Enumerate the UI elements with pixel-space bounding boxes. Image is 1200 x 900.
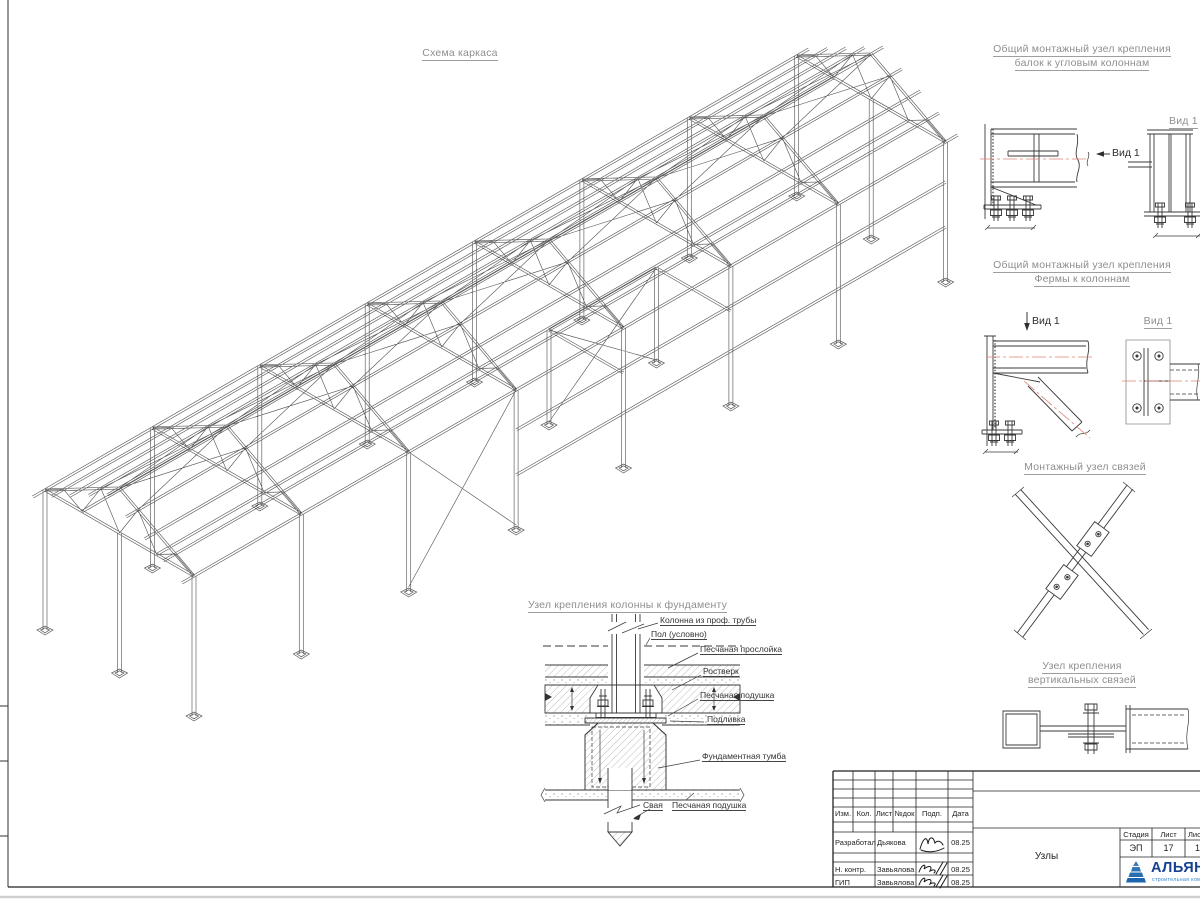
view2-side-label: Вид 1 [1130,315,1186,327]
tb-sheets-value: 1 [1185,843,1200,853]
tb-stage-label: Стадия [1120,830,1152,839]
tb-col-kol: Кол. [853,809,875,818]
tb-sheet-label: Лист [1152,830,1185,839]
tb-role-developer: Разработал [835,838,876,847]
detail1-title-line1: Общий монтажный узел крепления [963,43,1200,55]
tb-col-data: Дата [948,809,973,818]
tb-col-izm: Изм. [833,809,853,818]
tb-name-ncontrol: Завьялова [877,865,914,874]
detail1-title-line2: балок к угловым колоннам [963,57,1200,69]
tb-name-developer: Дьякова [877,838,906,847]
tb-col-ndoc: №док [893,809,916,818]
tb-name-gip: Завьялова [877,878,914,887]
view1-side-label: Вид 1 [1169,115,1200,127]
detail2-title-line1: Общий монтажный узел крепления [963,259,1200,271]
detail3-title: Монтажный узел связей [990,461,1180,473]
callout-floor: Пол (условно) [651,629,707,640]
tb-date-gip: 08.25 [948,878,973,887]
company-subtitle: строительная комп [1152,877,1200,883]
signature [919,838,947,888]
detail2-title-line2: Фермы к колоннам [963,273,1200,285]
tb-doc-name: Узлы [973,851,1120,862]
detail-beam-corner-column [980,124,1200,238]
callout-sand-cushion-2: Песчаная подушка [672,800,746,811]
tb-role-ncontrol: Н. контр. [835,865,866,874]
tb-date-developer: 08.25 [948,838,973,847]
detail-vertical-brace [1003,704,1189,754]
detail4-title-line1: Узел крепления [992,660,1172,672]
tb-sheets-label: Лис [1185,830,1200,839]
callout-grout: Подливка [707,714,745,725]
callout-pile: Свая [643,800,663,811]
linework [0,0,1200,900]
tb-role-gip: ГИП [835,878,850,887]
callout-grillage: Ростверк [703,666,739,677]
tb-stage-value: ЭП [1120,843,1152,853]
company-logo-icon [1126,861,1146,883]
foundation-title: Узел крепления колонны к фундаменту [528,599,727,611]
tb-col-podp: Подп. [916,809,948,818]
iso-frame-drawing [32,46,958,721]
detail-truss-column [982,312,1200,454]
drawing-sheet: Схема каркаса Общий монтажный узел крепл… [0,0,1200,900]
tb-sheet-value: 17 [1152,843,1185,853]
tb-col-list: Лист [875,809,893,818]
detail4-title-line2: вертикальных связей [992,674,1172,686]
main-view-title: Схема каркаса [400,47,520,59]
company-name: АЛЬЯН [1151,860,1200,876]
view1-arrow-label: Вид 1 [1112,147,1140,159]
callout-pedestal: Фундаментная тумба [702,751,786,762]
view2-arrow-label: Вид 1 [1032,315,1060,327]
callout-sand-cushion: Песчаная подушка [700,690,774,701]
detail-brace-splice [1012,482,1152,640]
tb-date-ncontrol: 08.25 [948,865,973,874]
callout-sand-layer: Песчаная прослойка [700,644,782,655]
callout-column: Колонна из проф. трубы [660,615,756,626]
